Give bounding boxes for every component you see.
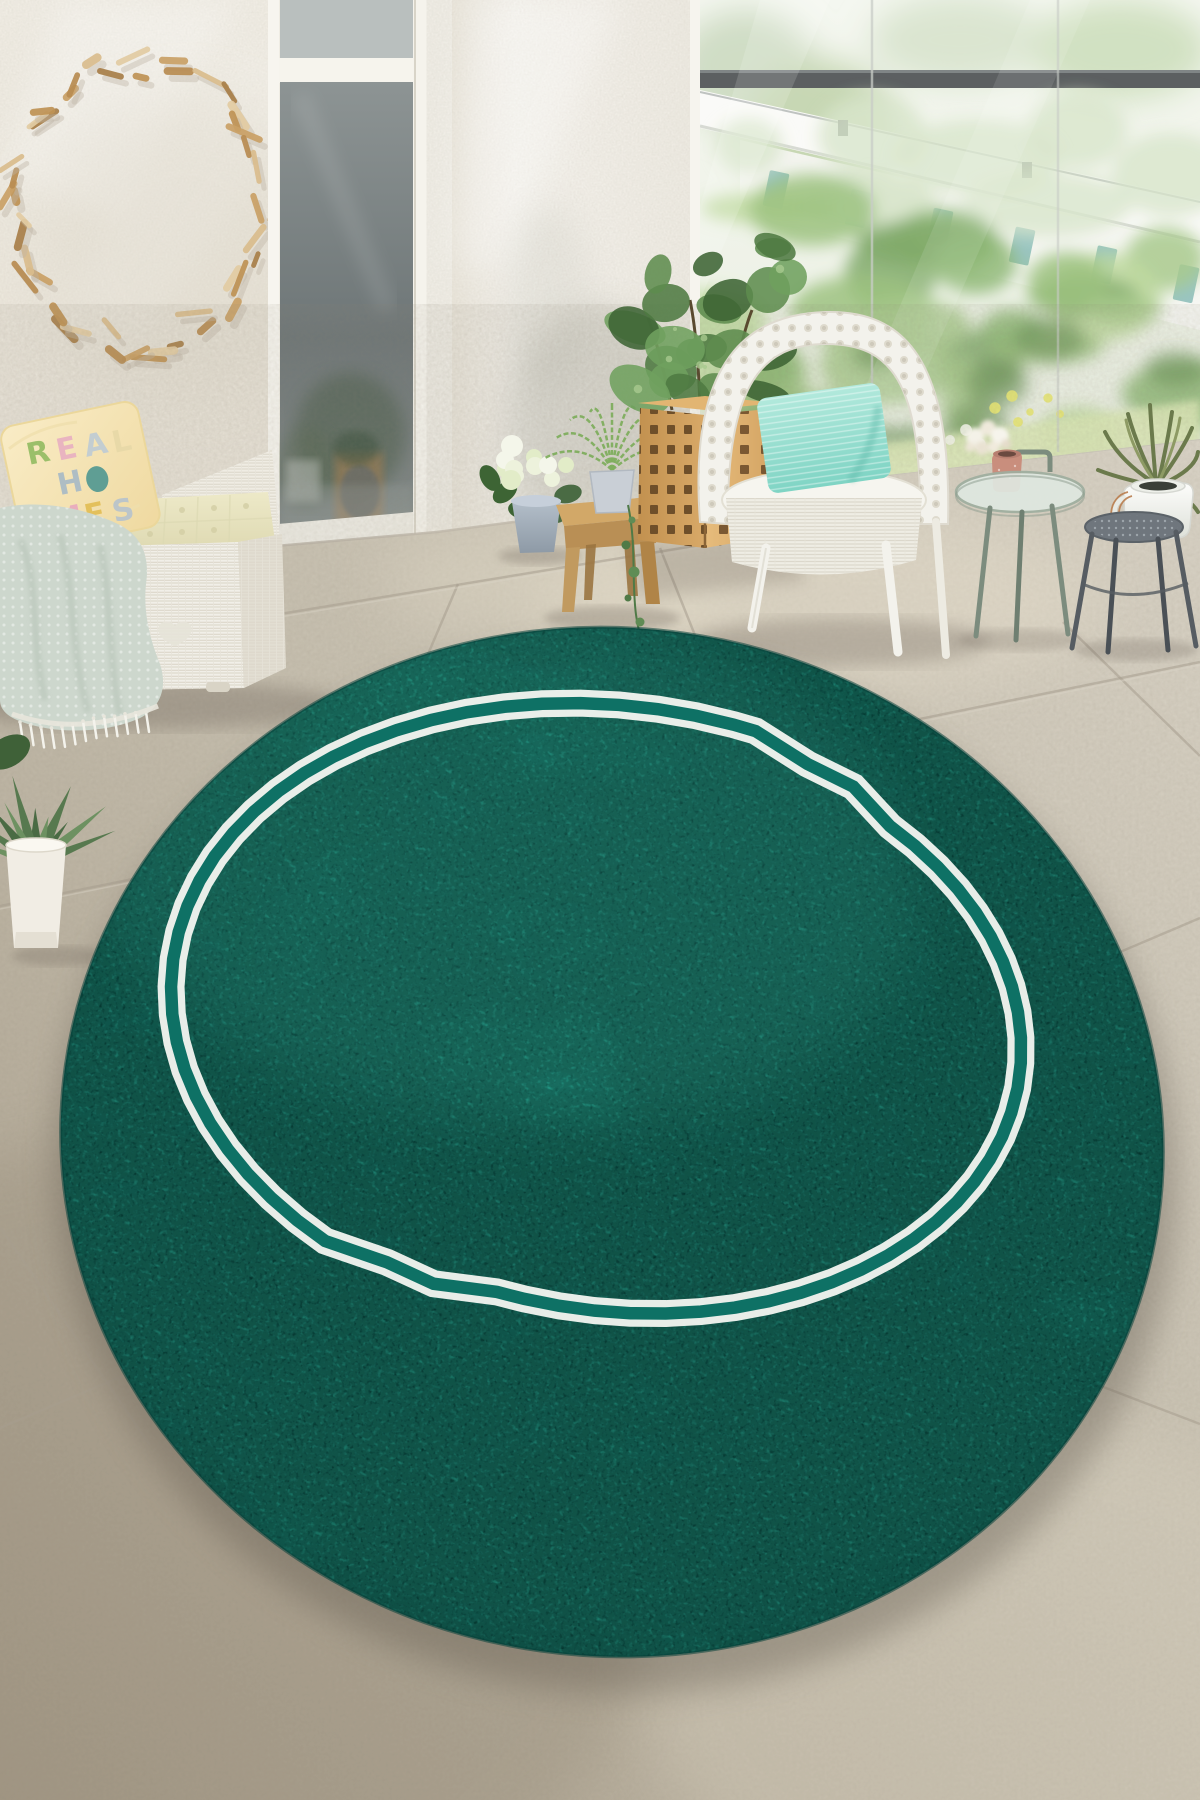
hydrangea-pot-rim: [511, 495, 561, 507]
plant-shadow-on-pillar: [506, 205, 590, 395]
mint-pillow: [756, 382, 892, 494]
ivy-leaf: [622, 541, 631, 550]
aloe-pot-rim: [6, 838, 66, 852]
fringe-knot: [29, 723, 33, 727]
ivy-leaf: [636, 618, 645, 627]
hydrangea-bloom: [558, 457, 574, 473]
sliding-glass-door: [268, 0, 458, 560]
fringe-knot: [92, 716, 96, 720]
planter-left-lattice: [638, 408, 705, 548]
wreath-twig: [164, 67, 195, 75]
door-transom-rail: [276, 58, 417, 83]
fringe-knot: [18, 720, 22, 724]
fringe-knot: [60, 725, 64, 729]
fringe-knot: [134, 711, 138, 715]
table-top: [956, 472, 1084, 512]
stool-shadow: [1074, 639, 1198, 661]
ivy-leaf: [629, 567, 640, 578]
door-transom-glass: [280, 0, 413, 60]
jug-soil: [1139, 482, 1177, 491]
hydrangea-pot: [512, 500, 561, 553]
shrub-leaf-highlight: [701, 335, 708, 342]
reflected-pot-plant: [333, 431, 379, 465]
aloe-pot-base-shade: [14, 932, 58, 948]
fringe-knot: [102, 714, 106, 718]
hydrangea-bloom: [501, 470, 521, 490]
shrub-leaf-highlight: [776, 265, 784, 273]
scene: REALHMES: [0, 0, 1200, 1800]
ivy-leaf: [629, 517, 636, 524]
fringe-knot: [144, 710, 148, 714]
patio-photo: REALHMES: [0, 0, 1200, 1800]
bench-foot: [206, 682, 230, 692]
fringe-knot: [123, 712, 127, 716]
fringe-knot: [113, 714, 117, 718]
pink-pot-soil: [998, 451, 1016, 457]
fringe-knot: [81, 719, 85, 723]
fringe-knot: [50, 726, 54, 730]
fringe-knot: [39, 726, 43, 730]
bench-side-weave: [238, 534, 286, 688]
stool-seat-perforation: [1090, 515, 1178, 539]
wreath-twig: [159, 57, 189, 65]
chair-apron-weave: [726, 498, 922, 575]
ivy-leaf: [625, 595, 632, 602]
wreath-twig-shadow: [169, 74, 200, 82]
shrub-leaf-highlight: [696, 361, 704, 369]
door-jamb-right: [413, 0, 457, 545]
shrub-leaf-highlight: [634, 385, 643, 394]
hydrangea-bloom: [539, 456, 557, 474]
shrub-leaf-highlight: [666, 356, 673, 363]
shrub-leaf-highlight: [673, 327, 677, 331]
fringe-knot: [71, 722, 75, 726]
